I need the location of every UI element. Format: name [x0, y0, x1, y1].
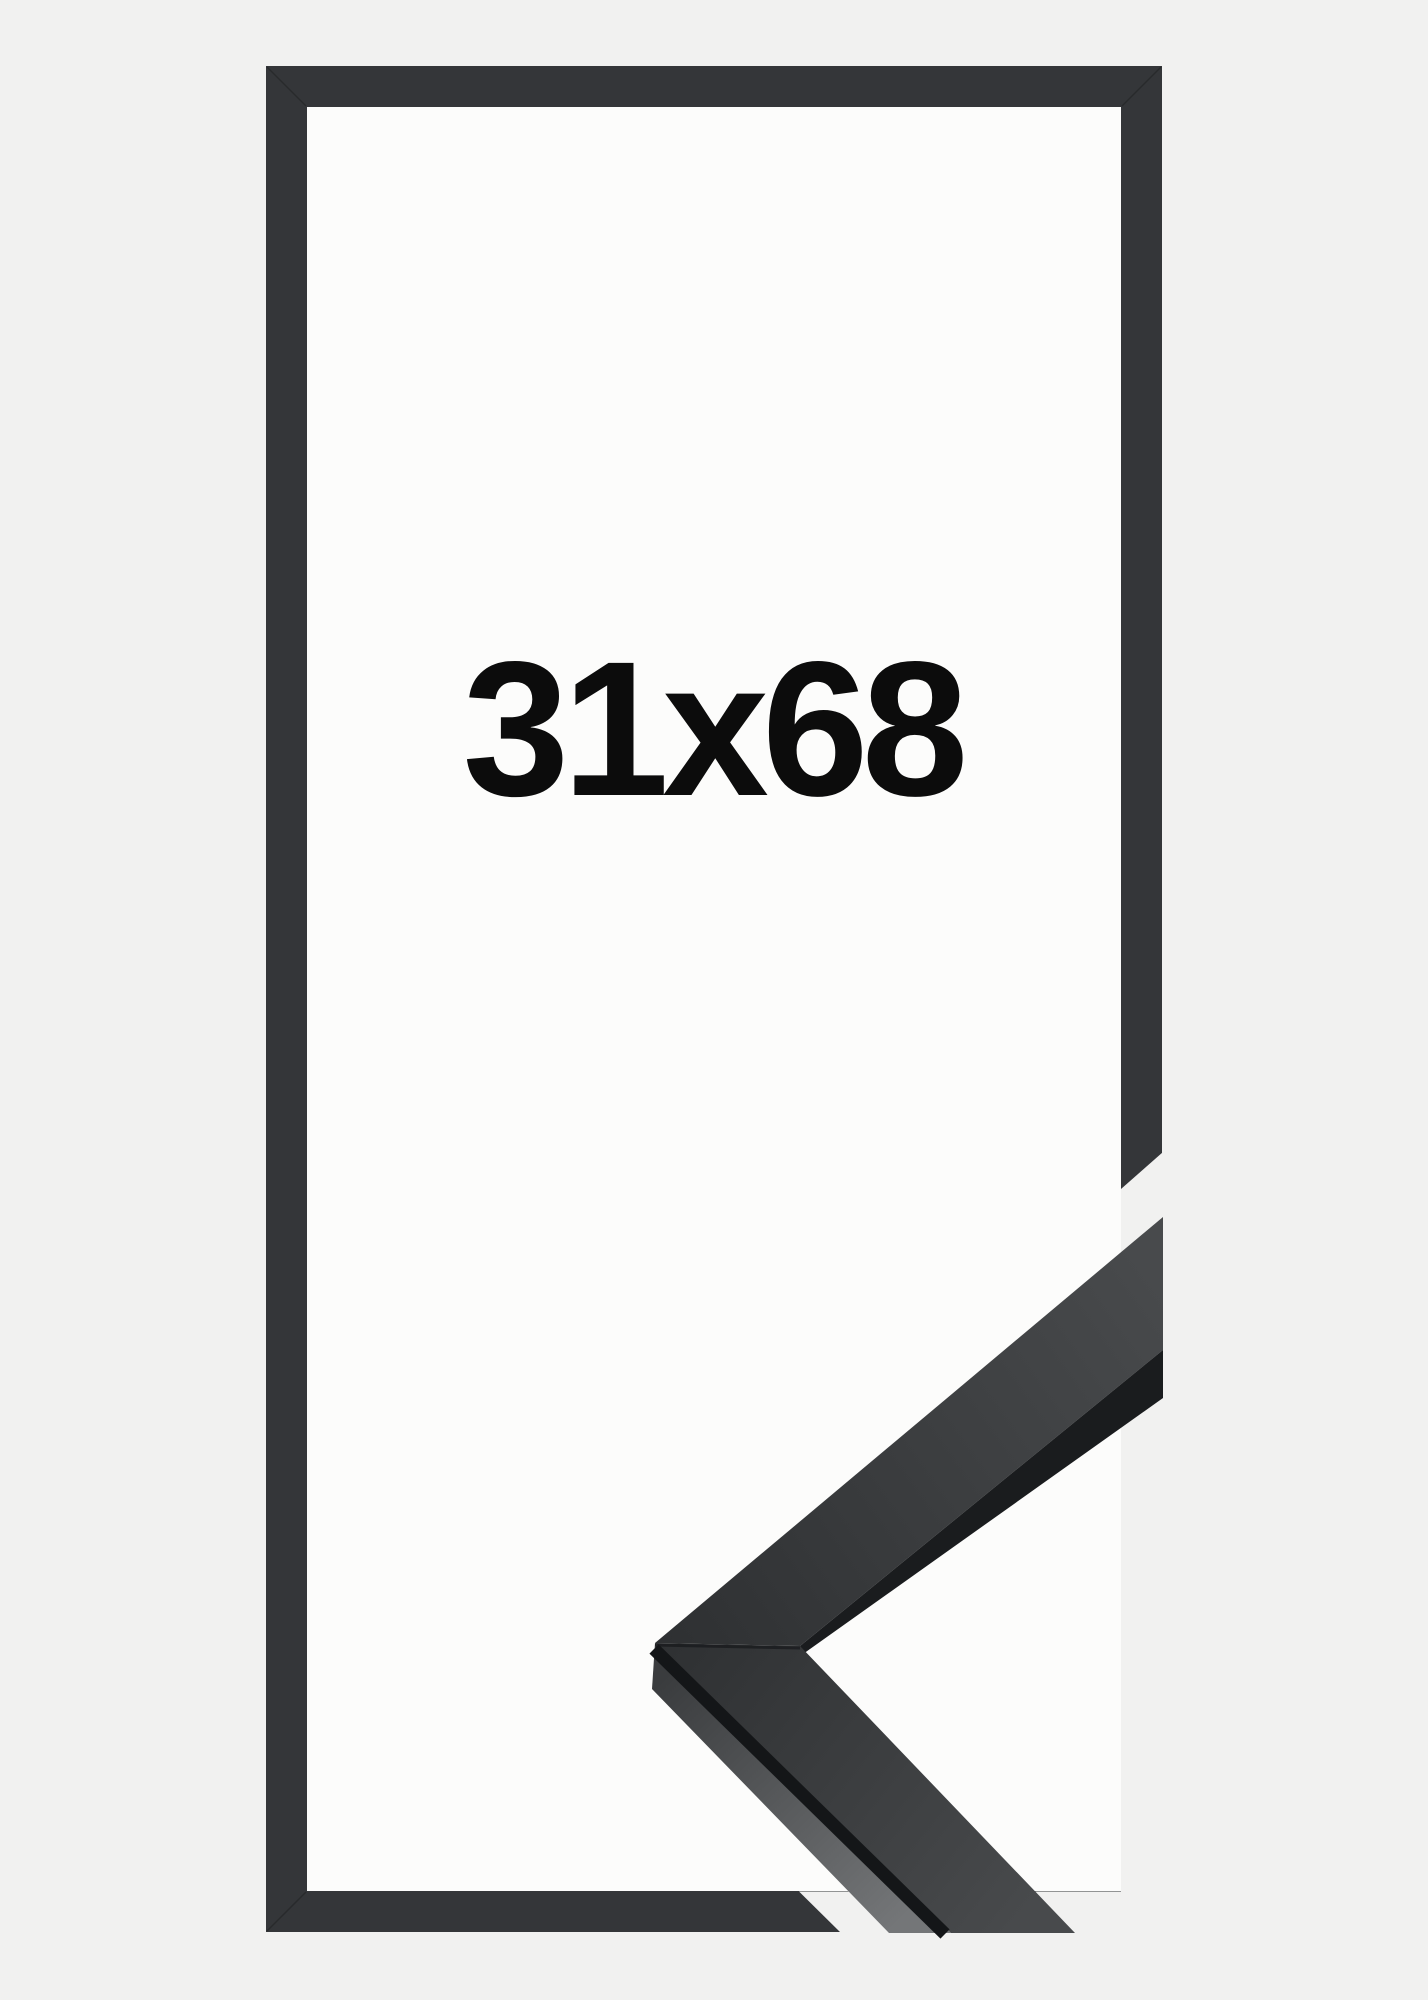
size-label: 31x68 — [463, 621, 963, 836]
product-image: 31x68 — [0, 0, 1428, 2000]
frame-product-graphic: 31x68 — [0, 0, 1428, 2000]
